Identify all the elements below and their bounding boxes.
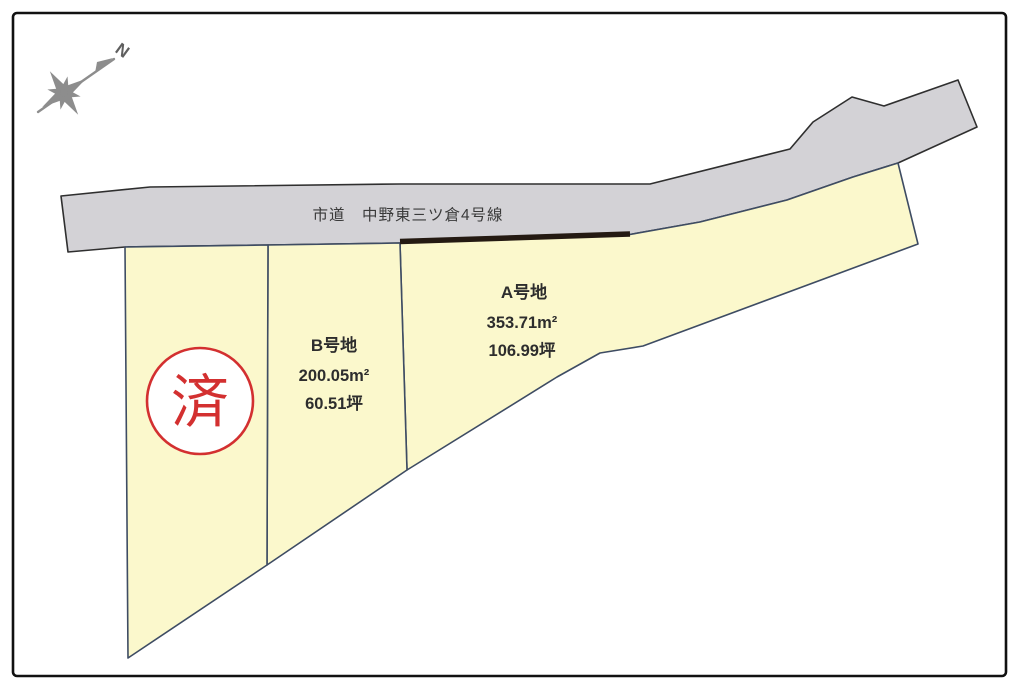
parcel-a-name: A号地 <box>501 282 547 302</box>
compass-star-icon <box>28 57 100 129</box>
plot-map-canvas: 市道 中野東三ツ倉4号線 A号地 353.71m² 106.99坪 B号地 20… <box>0 0 1024 686</box>
road-label: 市道 中野東三ツ倉4号線 <box>312 206 503 224</box>
parcel-b-name: B号地 <box>311 335 357 355</box>
parcel-b-area-sqm: 200.05m² <box>299 367 370 385</box>
parcel-b-area-tsubo: 60.51坪 <box>305 394 363 413</box>
parcel-a-area-tsubo: 106.99坪 <box>489 341 556 360</box>
parcel-a-area-sqm: 353.71m² <box>487 314 558 332</box>
sold-stamp-text: 済 <box>171 370 229 435</box>
compass-rose: N <box>28 39 133 129</box>
